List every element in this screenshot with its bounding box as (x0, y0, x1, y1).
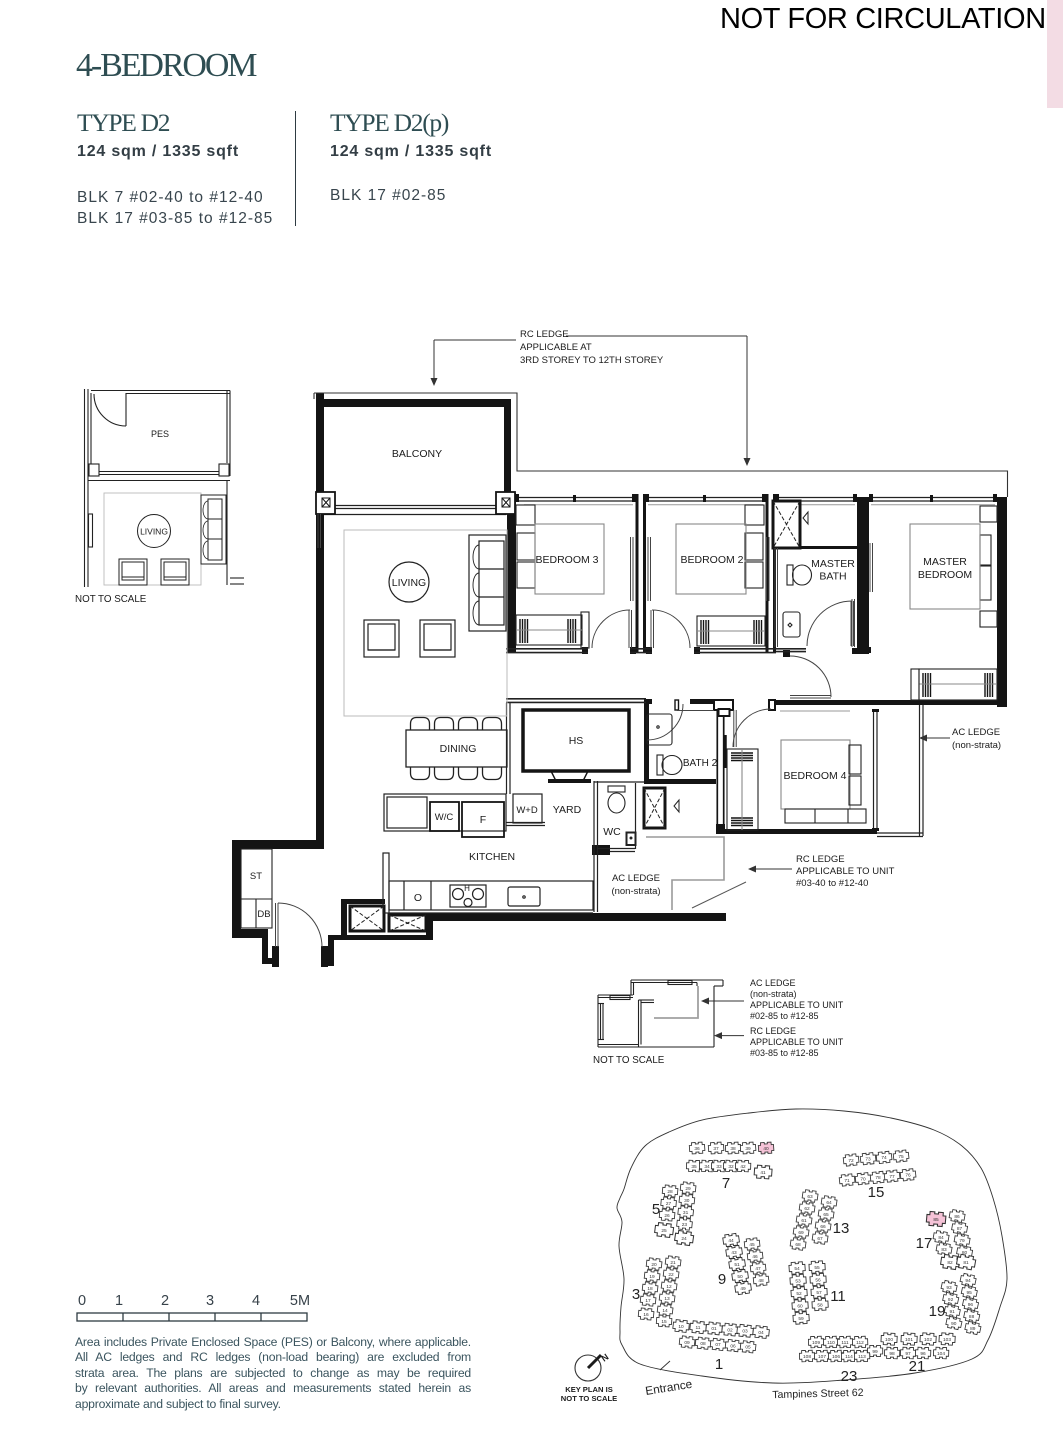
svg-text:72: 72 (848, 1158, 854, 1164)
svg-text:70: 70 (860, 1177, 866, 1183)
svg-text:WC: WC (603, 826, 621, 838)
svg-text:#02-85 to #12-85: #02-85 to #12-85 (750, 1011, 819, 1021)
svg-text:102: 102 (924, 1337, 932, 1343)
svg-text:68: 68 (795, 1242, 801, 1248)
svg-text:N: N (599, 1352, 610, 1364)
svg-text:09: 09 (684, 1340, 690, 1346)
svg-text:50: 50 (737, 1274, 743, 1280)
svg-text:5: 5 (652, 1201, 660, 1218)
svg-text:95: 95 (967, 1290, 973, 1296)
svg-text:9: 9 (718, 1271, 726, 1288)
svg-text:07: 07 (715, 1342, 721, 1348)
svg-text:74: 74 (881, 1155, 887, 1161)
svg-text:40: 40 (763, 1146, 769, 1152)
svg-text:81: 81 (963, 1260, 969, 1266)
svg-text:LIVING: LIVING (140, 527, 168, 537)
svg-text:BALCONY: BALCONY (392, 448, 442, 460)
svg-text:APPLICABLE TO UNIT: APPLICABLE TO UNIT (796, 866, 895, 877)
svg-text:1: 1 (715, 1356, 723, 1373)
svg-text:43: 43 (731, 1250, 737, 1256)
svg-text:27: 27 (666, 1201, 672, 1207)
svg-text:DB: DB (257, 909, 270, 920)
svg-text:3RD STOREY TO 12TH STOREY: 3RD STOREY TO 12TH STOREY (520, 355, 664, 366)
svg-text:AC LEDGE: AC LEDGE (612, 873, 660, 884)
svg-text:Tampines Street 62: Tampines Street 62 (772, 1387, 864, 1401)
svg-text:YARD: YARD (553, 804, 582, 816)
svg-text:01: 01 (711, 1326, 717, 1332)
svg-text:7: 7 (722, 1175, 730, 1192)
svg-text:RC LEDGE: RC LEDGE (750, 1026, 796, 1036)
svg-text:BATH: BATH (819, 571, 846, 583)
svg-text:BATH 2: BATH 2 (683, 758, 718, 769)
svg-text:54: 54 (794, 1266, 800, 1272)
svg-text:10: 10 (678, 1324, 684, 1330)
svg-text:06: 06 (730, 1343, 736, 1349)
svg-text:(non-strata): (non-strata) (611, 886, 660, 897)
svg-text:MASTER: MASTER (811, 558, 855, 570)
svg-text:82: 82 (947, 1260, 953, 1266)
svg-text:96: 96 (968, 1302, 974, 1308)
svg-text:38: 38 (730, 1146, 736, 1152)
svg-text:62: 62 (804, 1206, 810, 1212)
svg-text:84: 84 (938, 1235, 944, 1241)
svg-text:59: 59 (798, 1316, 804, 1322)
svg-text:92: 92 (948, 1297, 954, 1303)
svg-text:64: 64 (826, 1200, 832, 1206)
svg-text:AC LEDGE: AC LEDGE (750, 978, 796, 988)
svg-text:114: 114 (845, 1354, 853, 1360)
svg-text:BEDROOM: BEDROOM (918, 569, 972, 581)
svg-text:21: 21 (670, 1260, 676, 1266)
svg-text:107: 107 (818, 1354, 826, 1360)
svg-text:4: 4 (252, 1293, 260, 1309)
svg-text:29: 29 (685, 1186, 691, 1192)
svg-text:17: 17 (645, 1298, 651, 1304)
svg-text:103: 103 (943, 1337, 951, 1343)
svg-text:RC LEDGE: RC LEDGE (796, 854, 845, 865)
svg-text:25: 25 (661, 1228, 667, 1234)
svg-text:(non-strata): (non-strata) (750, 989, 797, 999)
svg-text:11: 11 (830, 1288, 846, 1305)
svg-text:71: 71 (844, 1178, 850, 1184)
svg-text:PES: PES (151, 429, 169, 439)
svg-text:13: 13 (664, 1296, 670, 1302)
svg-text:41: 41 (760, 1170, 766, 1176)
svg-text:67: 67 (817, 1236, 823, 1242)
svg-text:24: 24 (681, 1236, 687, 1242)
svg-text:53: 53 (795, 1278, 801, 1284)
svg-text:87: 87 (957, 1226, 963, 1232)
svg-text:48: 48 (758, 1278, 764, 1284)
svg-text:75: 75 (898, 1154, 904, 1160)
svg-text:23: 23 (841, 1368, 858, 1385)
svg-text:104: 104 (937, 1351, 945, 1357)
svg-text:BEDROOM 4: BEDROOM 4 (783, 770, 846, 782)
svg-text:H: H (464, 884, 470, 893)
svg-text:42: 42 (740, 1164, 746, 1170)
svg-text:KITCHEN: KITCHEN (469, 851, 515, 863)
svg-text:32: 32 (728, 1164, 734, 1170)
svg-text:91: 91 (950, 1309, 956, 1315)
svg-text:17: 17 (916, 1235, 933, 1252)
svg-text:97: 97 (905, 1351, 911, 1357)
svg-text:47: 47 (755, 1266, 761, 1272)
svg-text:HS: HS (569, 735, 584, 747)
svg-text:45: 45 (749, 1242, 755, 1248)
svg-text:14: 14 (662, 1308, 668, 1314)
svg-text:19: 19 (929, 1303, 946, 1320)
svg-text:108: 108 (803, 1354, 811, 1360)
svg-text:88: 88 (969, 1314, 975, 1320)
svg-text:NOT TO SCALE: NOT TO SCALE (75, 594, 147, 605)
svg-text:KEY PLAN IS: KEY PLAN IS (565, 1385, 613, 1394)
svg-text:39: 39 (745, 1146, 751, 1152)
svg-text:112: 112 (856, 1340, 864, 1346)
svg-text:RC LEDGE: RC LEDGE (520, 329, 569, 340)
svg-text:69: 69 (798, 1230, 804, 1236)
svg-text:90: 90 (951, 1321, 957, 1327)
svg-text:96: 96 (920, 1351, 926, 1357)
svg-text:O: O (414, 892, 422, 904)
svg-text:63: 63 (807, 1194, 813, 1200)
svg-text:Entrance: Entrance (644, 1377, 693, 1398)
svg-text:57: 57 (816, 1290, 822, 1296)
svg-text:106: 106 (832, 1354, 840, 1360)
svg-text:11: 11 (696, 1325, 701, 1331)
svg-text:NOT TO SCALE: NOT TO SCALE (593, 1055, 665, 1066)
svg-text:51: 51 (734, 1262, 740, 1268)
svg-text:05: 05 (745, 1345, 751, 1351)
svg-text:3: 3 (632, 1286, 640, 1303)
svg-text:0: 0 (78, 1293, 86, 1309)
svg-text:LIVING: LIVING (392, 577, 426, 589)
svg-text:111: 111 (841, 1340, 849, 1346)
svg-text:21: 21 (909, 1358, 926, 1375)
svg-text:73: 73 (865, 1157, 871, 1163)
svg-text:113: 113 (858, 1354, 866, 1360)
svg-text:58: 58 (817, 1302, 823, 1308)
svg-text:16: 16 (643, 1312, 649, 1318)
svg-text:55: 55 (814, 1265, 820, 1271)
svg-text:77: 77 (889, 1174, 895, 1180)
svg-text:03: 03 (742, 1329, 748, 1335)
svg-text:76: 76 (905, 1173, 911, 1179)
svg-text:20: 20 (651, 1262, 657, 1268)
svg-text:18: 18 (647, 1286, 653, 1292)
svg-text:94: 94 (965, 1278, 971, 1284)
svg-text:98: 98 (889, 1351, 895, 1357)
svg-text:W/C: W/C (435, 812, 454, 823)
svg-text:44: 44 (728, 1238, 734, 1244)
svg-text:AC LEDGE: AC LEDGE (952, 727, 1000, 738)
svg-text:BEDROOM 3: BEDROOM 3 (535, 554, 598, 566)
svg-text:APPLICABLE TO UNIT: APPLICABLE TO UNIT (750, 1037, 844, 1047)
svg-text:34: 34 (704, 1164, 710, 1170)
svg-text:28: 28 (667, 1189, 673, 1195)
svg-text:52: 52 (796, 1291, 802, 1297)
svg-text:33: 33 (716, 1164, 722, 1170)
svg-text:79: 79 (959, 1238, 965, 1244)
svg-text:26: 26 (664, 1213, 670, 1219)
svg-text:13: 13 (833, 1220, 850, 1237)
svg-text:APPLICABLE TO UNIT: APPLICABLE TO UNIT (750, 1000, 844, 1010)
svg-text:101: 101 (905, 1337, 913, 1343)
svg-text:5M: 5M (290, 1293, 310, 1309)
svg-text:78: 78 (875, 1175, 881, 1181)
svg-text:08: 08 (700, 1341, 706, 1347)
svg-text:12: 12 (666, 1284, 672, 1290)
svg-text:15: 15 (661, 1319, 667, 1325)
svg-text:99: 99 (872, 1349, 878, 1355)
svg-text:#03-40 to #12-40: #03-40 to #12-40 (796, 878, 868, 889)
svg-text:86: 86 (954, 1214, 960, 1220)
svg-text:2: 2 (161, 1293, 169, 1309)
svg-text:46: 46 (752, 1254, 758, 1260)
svg-text:02: 02 (727, 1327, 733, 1333)
svg-text:15: 15 (868, 1184, 885, 1201)
svg-text:61: 61 (801, 1218, 807, 1224)
svg-text:3: 3 (206, 1293, 214, 1309)
svg-text:80: 80 (962, 1250, 968, 1256)
svg-text:APPLICABLE AT: APPLICABLE AT (520, 342, 592, 353)
svg-text:89: 89 (970, 1326, 976, 1332)
svg-text:19: 19 (649, 1274, 655, 1280)
svg-text:BEDROOM 2: BEDROOM 2 (680, 554, 743, 566)
svg-text:100: 100 (885, 1337, 893, 1343)
svg-text:NOT TO SCALE: NOT TO SCALE (561, 1394, 617, 1403)
svg-text:30: 30 (684, 1198, 690, 1204)
svg-text:04: 04 (758, 1330, 764, 1336)
svg-text:31: 31 (683, 1210, 689, 1216)
svg-text:36: 36 (694, 1146, 700, 1152)
svg-text:22: 22 (668, 1272, 674, 1278)
svg-text:37: 37 (713, 1146, 719, 1152)
svg-text:109: 109 (812, 1340, 820, 1346)
svg-text:93: 93 (946, 1285, 952, 1291)
svg-text:1: 1 (115, 1293, 123, 1309)
svg-text:110: 110 (827, 1340, 835, 1346)
svg-text:60: 60 (797, 1303, 803, 1309)
svg-text:F: F (480, 814, 486, 826)
svg-text:35: 35 (691, 1164, 697, 1170)
svg-text:ST: ST (250, 871, 262, 882)
svg-text:65: 65 (823, 1212, 829, 1218)
svg-text:(non-strata): (non-strata) (952, 740, 1001, 751)
svg-text:49: 49 (740, 1286, 746, 1292)
svg-text:#03-85 to #12-85: #03-85 to #12-85 (750, 1048, 819, 1058)
svg-text:MASTER: MASTER (923, 556, 967, 568)
svg-text:56: 56 (815, 1277, 821, 1283)
svg-text:83: 83 (941, 1247, 947, 1253)
svg-text:66: 66 (820, 1224, 826, 1230)
svg-text:W+D: W+D (516, 805, 538, 816)
svg-text:85: 85 (933, 1217, 939, 1223)
svg-text:DINING: DINING (440, 743, 477, 755)
svg-text:23: 23 (682, 1222, 688, 1228)
